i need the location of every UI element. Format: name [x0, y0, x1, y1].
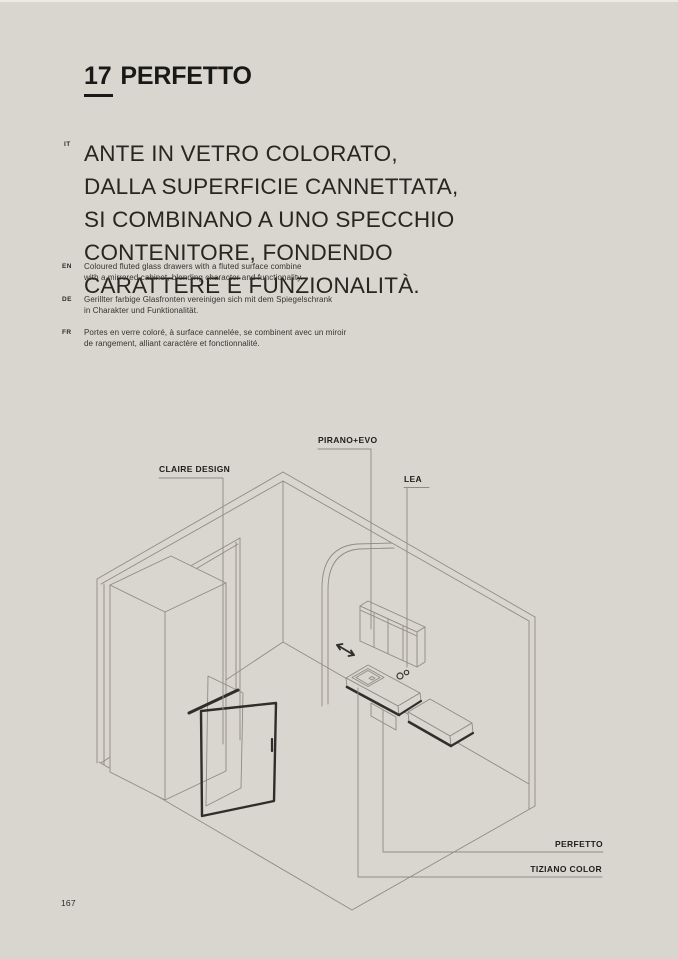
leader-perfetto [383, 710, 603, 852]
mirror-cabinet [360, 601, 425, 667]
figure-label-claire-design: CLAIRE DESIGN [159, 464, 230, 474]
faucet [397, 670, 409, 679]
figure-label-pirano-evo: PIRANO+EVO [318, 435, 377, 445]
isometric-bathroom-figure: CLAIRE DESIGN PIRANO+EVO LEA PERFETTO TI… [0, 0, 678, 959]
leader-pirano-evo [318, 449, 371, 629]
wardrobe-cabinet [110, 556, 226, 800]
figure-label-tiziano-color: TIZIANO COLOR [358, 864, 602, 874]
bench-unit [408, 699, 473, 746]
page-number: 167 [61, 898, 76, 908]
catalog-page: { "colors": { "background": "#d9d6cf", "… [0, 0, 678, 959]
figure-label-lea: LEA [404, 474, 422, 484]
isometric-room-drawing [0, 0, 678, 959]
sliding-arrow-icon [337, 644, 354, 656]
figure-label-perfetto: PERFETTO [383, 839, 603, 849]
vanity-unit [346, 665, 473, 746]
